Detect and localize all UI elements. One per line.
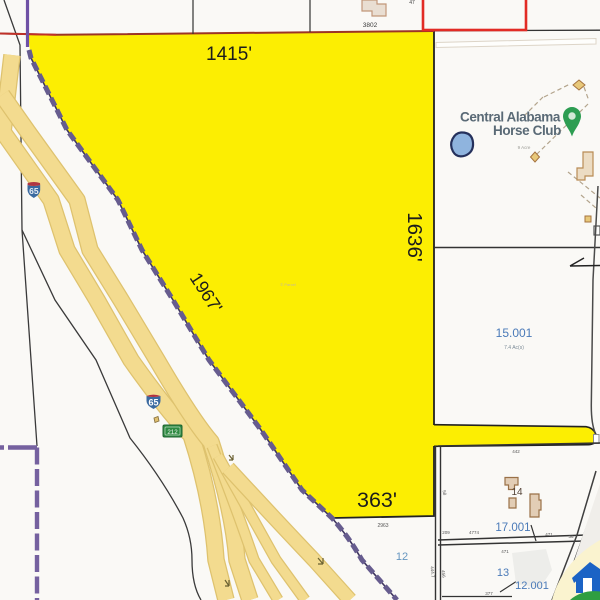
svg-text:442: 442	[512, 449, 520, 454]
svg-text:12.001: 12.001	[515, 580, 549, 592]
svg-text:9 Acre: 9 Acre	[518, 145, 531, 150]
svg-text:1415': 1415'	[206, 44, 252, 65]
svg-text:3802: 3802	[363, 22, 378, 29]
svg-text:17.001: 17.001	[495, 522, 530, 534]
svg-text:65: 65	[29, 186, 39, 196]
svg-text:© Parcel: © Parcel	[280, 282, 296, 287]
svg-text:47: 47	[409, 0, 415, 6]
svg-text:377: 377	[485, 591, 493, 596]
svg-text:12: 12	[396, 551, 408, 563]
svg-text:471: 471	[501, 549, 509, 554]
svg-text:363': 363'	[357, 488, 397, 512]
svg-text:36: 36	[568, 534, 574, 539]
svg-text:13: 13	[497, 567, 509, 579]
svg-text:4774: 4774	[469, 530, 480, 535]
svg-text:209: 209	[442, 530, 450, 535]
svg-text:Horse Club: Horse Club	[493, 123, 561, 138]
svg-text:14: 14	[511, 487, 523, 498]
svg-text:444.7: 444.7	[430, 566, 436, 578]
svg-text:471: 471	[545, 532, 553, 537]
svg-text:1636': 1636'	[403, 212, 426, 262]
svg-text:7.4 Ac(s): 7.4 Ac(s)	[504, 345, 524, 351]
svg-text:65: 65	[148, 398, 158, 408]
svg-text:15.001: 15.001	[496, 326, 533, 340]
svg-text:212: 212	[167, 429, 178, 436]
svg-text:2963: 2963	[377, 523, 388, 529]
svg-text:456: 456	[441, 570, 447, 578]
